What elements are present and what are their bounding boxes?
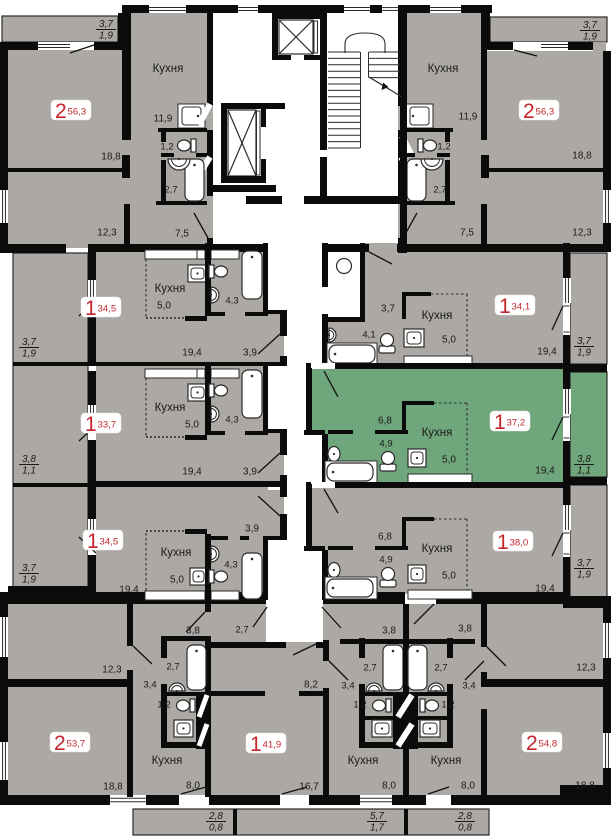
svg-text:3,7: 3,7 <box>99 19 113 30</box>
svg-text:8,0: 8,0 <box>186 781 200 792</box>
svg-text:8,0: 8,0 <box>382 781 396 792</box>
svg-text:1,1: 1,1 <box>577 466 591 477</box>
svg-text:11,9: 11,9 <box>459 112 478 123</box>
svg-text:18,8: 18,8 <box>101 152 121 163</box>
svg-text:3,4: 3,4 <box>341 681 354 692</box>
svg-text:3,8: 3,8 <box>22 454 36 465</box>
svg-text:1: 1 <box>494 411 506 434</box>
svg-text:2,7: 2,7 <box>164 185 177 196</box>
svg-text:34,5: 34,5 <box>100 537 119 548</box>
svg-text:1: 1 <box>85 413 97 436</box>
svg-text:53,7: 53,7 <box>67 739 86 750</box>
svg-text:Кухня: Кухня <box>422 427 453 439</box>
svg-text:12,3: 12,3 <box>572 228 592 239</box>
svg-text:1: 1 <box>497 531 509 554</box>
svg-text:56,3: 56,3 <box>68 107 87 118</box>
svg-text:3,7: 3,7 <box>577 336 591 347</box>
svg-text:3,7: 3,7 <box>577 558 591 569</box>
svg-text:18,8: 18,8 <box>103 782 123 793</box>
svg-text:1,9: 1,9 <box>99 31 113 42</box>
svg-text:1: 1 <box>250 733 262 756</box>
svg-text:19,4: 19,4 <box>119 585 139 596</box>
svg-text:8,0: 8,0 <box>461 781 475 792</box>
svg-text:Кухня: Кухня <box>161 547 192 559</box>
svg-text:2,7: 2,7 <box>235 625 248 636</box>
svg-text:3,8: 3,8 <box>186 626 200 637</box>
svg-text:1,9: 1,9 <box>22 349 36 360</box>
svg-text:37,2: 37,2 <box>507 418 526 429</box>
svg-text:0,8: 0,8 <box>209 823 223 834</box>
svg-text:Кухня: Кухня <box>152 755 183 767</box>
svg-text:5,0: 5,0 <box>442 335 456 346</box>
svg-text:1: 1 <box>499 295 511 318</box>
svg-text:Кухня: Кухня <box>153 63 184 75</box>
svg-text:3,8: 3,8 <box>458 624 472 635</box>
svg-text:2,7: 2,7 <box>166 662 179 673</box>
svg-text:5,0: 5,0 <box>442 571 456 582</box>
svg-text:3,9: 3,9 <box>243 467 257 478</box>
svg-text:5,0: 5,0 <box>185 420 199 431</box>
svg-text:4,9: 4,9 <box>379 555 392 566</box>
svg-text:8,2: 8,2 <box>304 680 318 691</box>
svg-text:1,7: 1,7 <box>370 823 384 834</box>
svg-text:1,2: 1,2 <box>437 142 450 153</box>
svg-text:6,8: 6,8 <box>378 532 392 543</box>
svg-text:2,7: 2,7 <box>363 663 376 674</box>
svg-text:4,3: 4,3 <box>225 415 238 426</box>
svg-text:1,2: 1,2 <box>441 700 454 711</box>
svg-text:2,8: 2,8 <box>208 811 223 822</box>
svg-text:3,7: 3,7 <box>381 304 395 315</box>
svg-text:2: 2 <box>523 100 535 123</box>
svg-text:5,0: 5,0 <box>442 455 456 466</box>
svg-text:2: 2 <box>55 100 67 123</box>
svg-text:Кухня: Кухня <box>155 283 186 295</box>
svg-text:7,5: 7,5 <box>460 228 474 239</box>
svg-text:5,0: 5,0 <box>170 575 184 586</box>
svg-text:1,2: 1,2 <box>353 700 366 711</box>
svg-text:41,9: 41,9 <box>263 740 282 751</box>
svg-text:Кухня: Кухня <box>431 755 462 767</box>
svg-text:Кухня: Кухня <box>428 63 459 75</box>
svg-text:Кухня: Кухня <box>422 543 453 555</box>
svg-text:1,9: 1,9 <box>583 32 597 43</box>
svg-text:6,8: 6,8 <box>378 416 392 427</box>
svg-text:1: 1 <box>85 297 97 320</box>
svg-text:3,9: 3,9 <box>243 348 257 359</box>
svg-text:33,7: 33,7 <box>98 420 117 431</box>
svg-text:5,0: 5,0 <box>157 301 171 312</box>
svg-text:3,7: 3,7 <box>22 563 36 574</box>
svg-text:2,7: 2,7 <box>434 663 447 674</box>
svg-text:1,1: 1,1 <box>22 466 36 477</box>
svg-text:1,9: 1,9 <box>577 570 591 581</box>
svg-text:18,8: 18,8 <box>572 151 592 162</box>
svg-text:11,9: 11,9 <box>154 114 173 125</box>
svg-text:3,8: 3,8 <box>382 626 396 637</box>
svg-text:1,9: 1,9 <box>577 348 591 359</box>
svg-text:19,4: 19,4 <box>182 467 202 478</box>
svg-text:2: 2 <box>54 732 66 755</box>
svg-text:1,2: 1,2 <box>157 700 170 711</box>
svg-text:4,1: 4,1 <box>362 330 375 341</box>
svg-text:7,5: 7,5 <box>175 229 189 240</box>
svg-text:3,8: 3,8 <box>577 454 591 465</box>
svg-text:Кухня: Кухня <box>422 310 453 322</box>
svg-text:12,3: 12,3 <box>97 228 117 239</box>
svg-text:3,7: 3,7 <box>583 20 597 31</box>
svg-text:56,3: 56,3 <box>536 107 555 118</box>
svg-text:3,7: 3,7 <box>22 337 36 348</box>
svg-text:16,7: 16,7 <box>299 782 319 793</box>
svg-text:2: 2 <box>526 732 538 755</box>
svg-text:5,7: 5,7 <box>370 811 384 822</box>
svg-text:38,0: 38,0 <box>510 538 529 549</box>
svg-text:1,9: 1,9 <box>22 575 36 586</box>
svg-text:19,4: 19,4 <box>537 347 557 358</box>
svg-text:1,2: 1,2 <box>160 142 173 153</box>
svg-text:54,8: 54,8 <box>539 739 558 750</box>
svg-text:34,1: 34,1 <box>512 302 531 313</box>
svg-text:Кухня: Кухня <box>348 755 379 767</box>
svg-text:0,8: 0,8 <box>458 823 472 834</box>
svg-text:Кухня: Кухня <box>155 402 186 414</box>
svg-text:2,8: 2,8 <box>457 811 472 822</box>
svg-text:3,9: 3,9 <box>245 524 259 535</box>
svg-text:4,9: 4,9 <box>379 439 392 450</box>
svg-text:19,4: 19,4 <box>182 348 202 359</box>
svg-text:3,4: 3,4 <box>143 680 156 691</box>
svg-text:4,3: 4,3 <box>225 296 238 307</box>
svg-text:4,3: 4,3 <box>224 560 237 571</box>
svg-text:19,4: 19,4 <box>535 584 555 595</box>
svg-text:19,4: 19,4 <box>535 466 555 477</box>
svg-text:12,3: 12,3 <box>576 663 596 674</box>
svg-text:2,7: 2,7 <box>433 185 446 196</box>
svg-text:18,8: 18,8 <box>575 781 595 792</box>
svg-text:3,4: 3,4 <box>462 681 475 692</box>
svg-text:1: 1 <box>87 530 99 553</box>
svg-text:12,3: 12,3 <box>102 665 122 676</box>
svg-text:34,5: 34,5 <box>98 304 117 315</box>
